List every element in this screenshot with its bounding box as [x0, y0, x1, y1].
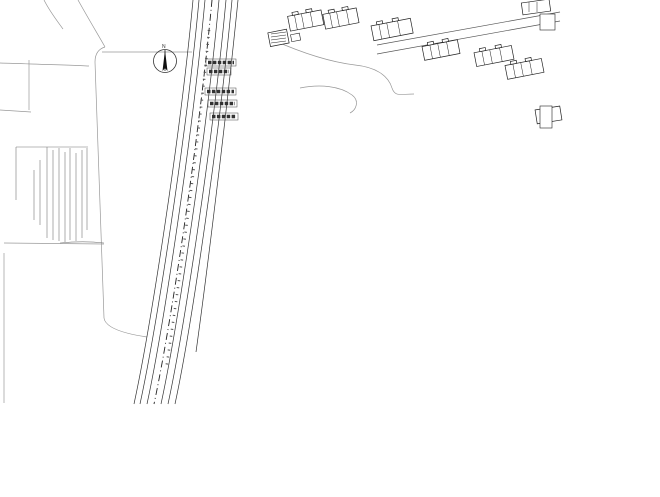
- svg-text:N: N: [162, 44, 166, 50]
